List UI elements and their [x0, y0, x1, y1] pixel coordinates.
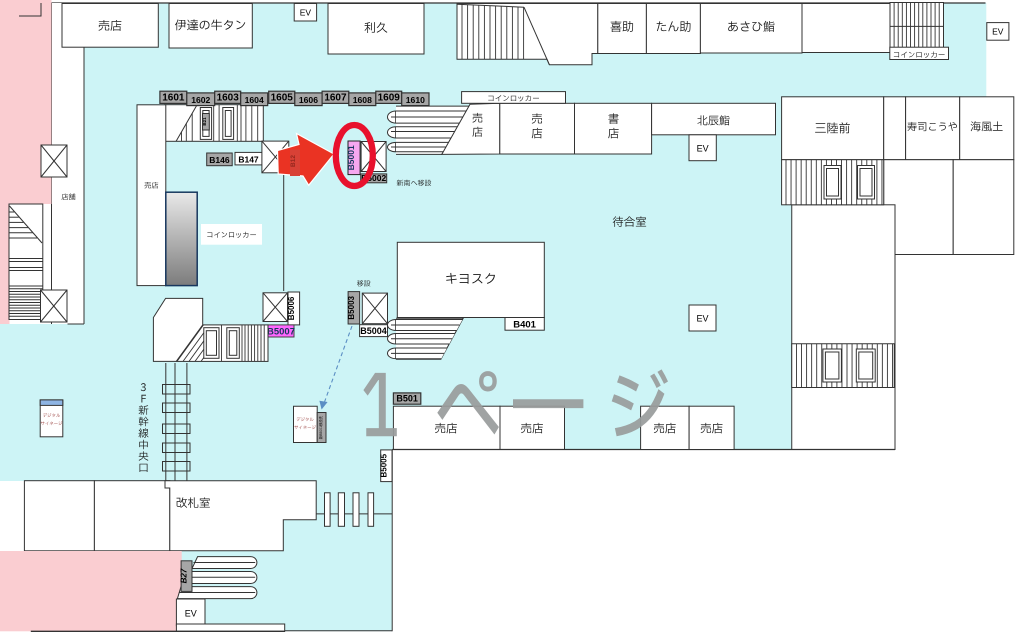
svg-text:B12: B12 — [290, 155, 297, 167]
svg-text:EV: EV — [300, 8, 312, 18]
svg-text:EV: EV — [697, 144, 709, 154]
svg-text:B401: B401 — [513, 319, 536, 330]
svg-text:1604: 1604 — [245, 95, 264, 105]
svg-text:B5001: B5001 — [346, 145, 356, 170]
svg-text:1609: 1609 — [378, 93, 401, 104]
svg-text:1608: 1608 — [353, 95, 372, 105]
svg-text:1605: 1605 — [271, 93, 294, 104]
svg-text:B27: B27 — [180, 568, 189, 583]
svg-text:EV: EV — [992, 27, 1004, 37]
svg-text:B21: B21 — [202, 117, 207, 126]
svg-text:B5004: B5004 — [360, 326, 387, 336]
svg-text:B5003: B5003 — [347, 295, 356, 319]
svg-text:B147: B147 — [238, 154, 259, 164]
svg-text:EV: EV — [696, 314, 708, 324]
svg-text:1601: 1601 — [162, 93, 185, 104]
svg-text:B501: B501 — [396, 394, 418, 404]
svg-text:1603: 1603 — [217, 93, 240, 104]
svg-text:1607: 1607 — [324, 93, 347, 104]
svg-text:1610: 1610 — [406, 95, 425, 105]
svg-text:1602: 1602 — [191, 95, 210, 105]
svg-text:1606: 1606 — [299, 95, 318, 105]
svg-text:B5005: B5005 — [379, 453, 388, 477]
svg-text:EV: EV — [185, 609, 197, 619]
svg-text:B5006: B5006 — [287, 296, 296, 320]
svg-text:B146: B146 — [209, 155, 230, 165]
svg-text:B5007: B5007 — [267, 326, 295, 337]
svg-text:新B5001移設先: 新B5001移設先 — [318, 415, 323, 439]
